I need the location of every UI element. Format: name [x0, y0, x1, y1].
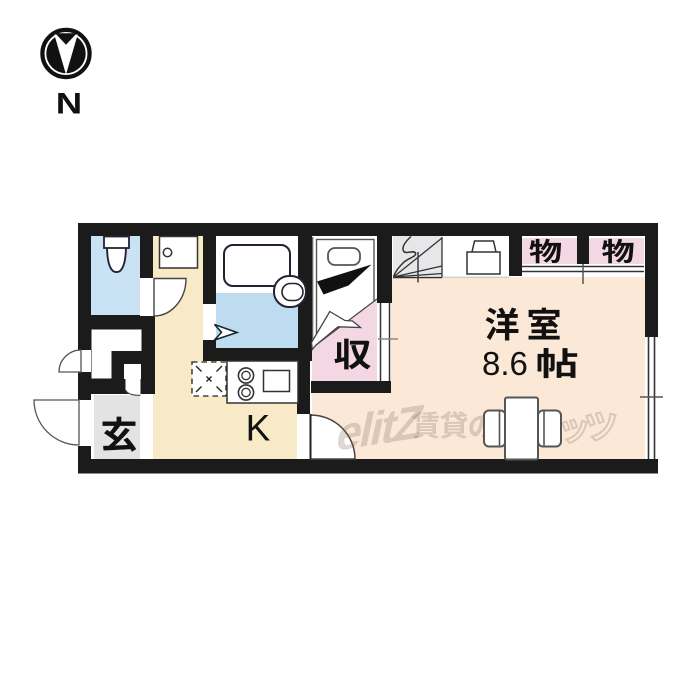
svg-text:N: N: [56, 88, 82, 121]
svg-text:K: K: [246, 408, 271, 449]
svg-text:8.6: 8.6: [482, 345, 528, 382]
